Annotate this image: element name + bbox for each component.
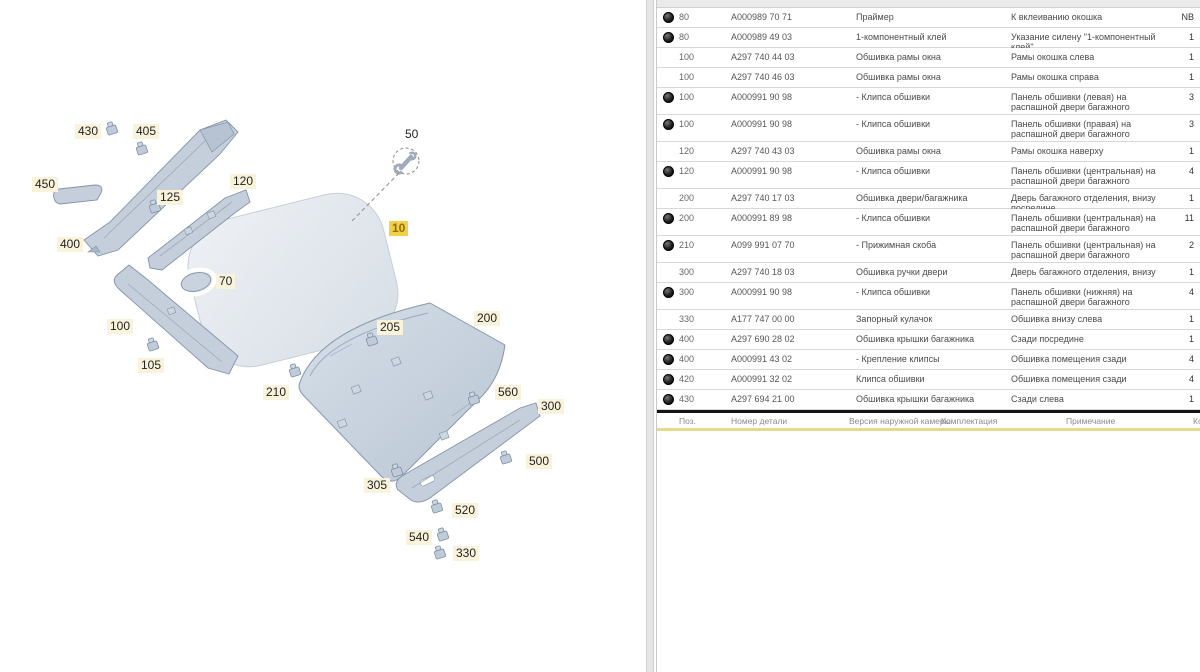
row-quantity: 11 bbox=[1149, 213, 1194, 223]
part-label-50[interactable]: 50 bbox=[402, 127, 421, 142]
table-row[interactable]: 80A000989 70 71ПраймерК вклеиванию окошк… bbox=[657, 8, 1200, 28]
part-image-icon[interactable] bbox=[663, 32, 674, 43]
row-pos: 300 bbox=[679, 267, 719, 277]
row-note: К вклеиванию окошка bbox=[1011, 12, 1161, 22]
row-pos: 210 bbox=[679, 240, 719, 250]
row-part-number: A297 690 28 02 bbox=[731, 334, 851, 344]
part-image-icon[interactable] bbox=[663, 92, 674, 103]
part-label-205[interactable]: 205 bbox=[377, 320, 403, 335]
row-part-number: A000991 43 02 bbox=[731, 354, 851, 364]
part-label-500[interactable]: 500 bbox=[526, 454, 552, 469]
part-label-105[interactable]: 105 bbox=[138, 358, 164, 373]
table-row[interactable]: 200A000991 89 98- Клипса обшивкиПанель о… bbox=[657, 209, 1200, 236]
table-row[interactable]: 330A177 747 00 00Запорный кулачокОбшивка… bbox=[657, 310, 1200, 330]
row-image-cell bbox=[663, 334, 675, 345]
row-part-number: A297 740 17 03 bbox=[731, 193, 851, 203]
row-pos: 400 bbox=[679, 334, 719, 344]
row-quantity: 2 bbox=[1149, 240, 1194, 250]
table-row[interactable]: 430A297 694 21 00Обшивка крышки багажник… bbox=[657, 390, 1200, 410]
part-image-icon[interactable] bbox=[663, 213, 674, 224]
table-row[interactable]: 100A000991 90 98- Клипса обшивкиПанель о… bbox=[657, 115, 1200, 142]
row-quantity: 1 bbox=[1149, 52, 1194, 62]
part-handle[interactable] bbox=[54, 185, 102, 204]
row-note: Обшивка внизу слева bbox=[1011, 314, 1161, 324]
part-label-450[interactable]: 450 bbox=[32, 177, 58, 192]
scrolled-row-remnant bbox=[657, 0, 1200, 8]
parts-table-pane: 80A000989 70 71ПраймерК вклеиванию окошк… bbox=[656, 0, 1200, 672]
row-pos: 100 bbox=[679, 92, 719, 102]
row-image-cell bbox=[663, 92, 675, 103]
part-label-540[interactable]: 540 bbox=[406, 530, 432, 545]
row-part-number: A099 991 07 70 bbox=[731, 240, 851, 250]
next-section-header: Поз. Номер детали Версия наружной камеры… bbox=[657, 413, 1200, 428]
row-note: Дверь багажного отделения, внизу bbox=[1011, 267, 1161, 277]
row-pos: 300 bbox=[679, 287, 719, 297]
table-row[interactable]: 100A297 740 44 03Обшивка рамы окнаРамы о… bbox=[657, 48, 1200, 68]
part-clip-105[interactable] bbox=[147, 338, 159, 352]
row-note: Рамы окошка слева bbox=[1011, 52, 1161, 62]
row-pos: 120 bbox=[679, 146, 719, 156]
part-label-330[interactable]: 330 bbox=[453, 546, 479, 561]
row-quantity: 4 bbox=[1149, 354, 1194, 364]
row-pos: 330 bbox=[679, 314, 719, 324]
part-label-210[interactable]: 210 bbox=[263, 385, 289, 400]
table-row[interactable]: 210A099 991 07 70- Прижимная скобаПанель… bbox=[657, 236, 1200, 263]
part-label-305[interactable]: 305 bbox=[364, 478, 390, 493]
table-row[interactable]: 200A297 740 17 03Обшивка двери/багажника… bbox=[657, 189, 1200, 209]
row-pos: 400 bbox=[679, 354, 719, 364]
part-label-400[interactable]: 400 bbox=[57, 237, 83, 252]
parts-diagram: 4304054504001251201001057050102052002105… bbox=[0, 0, 646, 672]
row-note: Обшивка помещения сзади bbox=[1011, 354, 1161, 364]
row-pos: 100 bbox=[679, 72, 719, 82]
part-label-100[interactable]: 100 bbox=[107, 319, 133, 334]
part-label-125[interactable]: 125 bbox=[157, 190, 183, 205]
row-part-number: A000989 70 71 bbox=[731, 12, 851, 22]
row-image-cell bbox=[663, 166, 675, 177]
row-image-cell bbox=[663, 32, 675, 43]
row-part-number: A297 740 18 03 bbox=[731, 267, 851, 277]
row-image-cell bbox=[663, 213, 675, 224]
diagram-canvas bbox=[0, 0, 646, 672]
part-image-icon[interactable] bbox=[663, 334, 674, 345]
row-image-cell bbox=[663, 240, 675, 251]
row-image-cell bbox=[663, 394, 675, 405]
row-part-number: A000991 89 98 bbox=[731, 213, 851, 223]
row-part-name: Обшивка крышки багажника bbox=[856, 394, 1006, 404]
table-row[interactable]: 120A297 740 43 03Обшивка рамы окнаРамы о… bbox=[657, 142, 1200, 162]
part-clip-500[interactable] bbox=[500, 451, 512, 465]
row-part-number: A000989 49 03 bbox=[731, 32, 851, 42]
part-clip-210[interactable] bbox=[289, 364, 301, 378]
row-quantity: 1 bbox=[1149, 394, 1194, 404]
part-label-300[interactable]: 300 bbox=[538, 399, 564, 414]
wrench-icon[interactable] bbox=[393, 148, 419, 175]
parts-table-rows: 80A000989 70 71ПраймерК вклеиванию окошк… bbox=[657, 8, 1200, 410]
row-part-name: Обшивка двери/багажника bbox=[856, 193, 1006, 203]
part-clip-430[interactable] bbox=[106, 122, 118, 136]
table-row[interactable]: 300A297 740 18 03Обшивка ручки двериДвер… bbox=[657, 263, 1200, 283]
row-part-number: A000991 32 02 bbox=[731, 374, 851, 384]
row-part-name: - Крепление клипсы bbox=[856, 354, 1006, 364]
part-image-icon[interactable] bbox=[663, 287, 674, 298]
row-part-name: - Клипса обшивки bbox=[856, 92, 1006, 102]
part-image-icon[interactable] bbox=[663, 394, 674, 405]
part-label-200[interactable]: 200 bbox=[474, 311, 500, 326]
row-part-number: A177 747 00 00 bbox=[731, 314, 851, 324]
row-quantity: 1 bbox=[1149, 193, 1194, 203]
pane-divider-scrollbar[interactable] bbox=[646, 0, 654, 672]
row-pos: 200 bbox=[679, 213, 719, 223]
col-header-pos: Поз. bbox=[679, 416, 696, 426]
col-header-equipment: Комплектация bbox=[941, 416, 997, 426]
row-part-number: A297 740 43 03 bbox=[731, 146, 851, 156]
row-quantity: 1 bbox=[1149, 32, 1194, 42]
row-pos: 430 bbox=[679, 394, 719, 404]
part-label-120[interactable]: 120 bbox=[230, 174, 256, 189]
row-quantity: 1 bbox=[1149, 146, 1194, 156]
row-part-name: Обшивка рамы окна bbox=[856, 146, 1006, 156]
row-part-name: - Клипса обшивки bbox=[856, 119, 1006, 129]
part-image-icon[interactable] bbox=[663, 166, 674, 177]
part-label-10[interactable]: 10 bbox=[389, 221, 408, 236]
table-row[interactable]: 80A000989 49 031-компонентный клейУказан… bbox=[657, 28, 1200, 48]
row-part-number: A000991 90 98 bbox=[731, 287, 851, 297]
row-part-number: A297 740 44 03 bbox=[731, 52, 851, 62]
row-quantity: 1 bbox=[1149, 72, 1194, 82]
row-pos: 80 bbox=[679, 12, 719, 22]
part-clip-540[interactable] bbox=[437, 528, 449, 542]
section-accent-underline bbox=[657, 428, 1200, 431]
row-quantity: 4 bbox=[1149, 374, 1194, 384]
row-part-name: Обшивка ручки двери bbox=[856, 267, 1006, 277]
row-part-name: Запорный кулачок bbox=[856, 314, 1006, 324]
row-pos: 100 bbox=[679, 119, 719, 129]
part-clip-520[interactable] bbox=[431, 500, 443, 514]
row-image-cell bbox=[663, 354, 675, 365]
row-pos: 420 bbox=[679, 374, 719, 384]
row-quantity: 3 bbox=[1149, 119, 1194, 129]
part-image-icon[interactable] bbox=[663, 240, 674, 251]
row-part-number: A297 740 46 03 bbox=[731, 72, 851, 82]
part-clip-405[interactable] bbox=[136, 142, 148, 156]
table-row[interactable]: 420A000991 32 02Клипса обшивкиОбшивка по… bbox=[657, 370, 1200, 390]
row-quantity: 1 bbox=[1149, 314, 1194, 324]
row-note: Обшивка помещения сзади bbox=[1011, 374, 1161, 384]
row-note: Сзади посредине bbox=[1011, 334, 1161, 344]
row-part-name: - Клипса обшивки bbox=[856, 213, 1006, 223]
row-part-name: 1-компонентный клей bbox=[856, 32, 1006, 42]
part-image-icon[interactable] bbox=[663, 119, 674, 130]
row-note: Рамы окошка наверху bbox=[1011, 146, 1161, 156]
part-image-icon[interactable] bbox=[663, 374, 674, 385]
part-image-icon[interactable] bbox=[663, 12, 674, 23]
part-image-icon[interactable] bbox=[663, 354, 674, 365]
row-part-name: - Клипса обшивки bbox=[856, 166, 1006, 176]
row-part-number: A000991 90 98 bbox=[731, 166, 851, 176]
part-label-405[interactable]: 405 bbox=[133, 124, 159, 139]
part-label-430[interactable]: 430 bbox=[75, 124, 101, 139]
row-part-name: Обшивка крышки багажника bbox=[856, 334, 1006, 344]
row-quantity: 1 bbox=[1149, 267, 1194, 277]
row-quantity: 4 bbox=[1149, 166, 1194, 176]
col-header-partnumber: Номер детали bbox=[731, 416, 787, 426]
row-part-name: Обшивка рамы окна bbox=[856, 72, 1006, 82]
row-pos: 100 bbox=[679, 52, 719, 62]
row-part-name: Праймер bbox=[856, 12, 1006, 22]
row-part-name: Клипса обшивки bbox=[856, 374, 1006, 384]
row-quantity: 4 bbox=[1149, 287, 1194, 297]
row-note: Сзади слева bbox=[1011, 394, 1161, 404]
row-pos: 120 bbox=[679, 166, 719, 176]
col-header-qty: Кол-во bbox=[1193, 416, 1200, 426]
row-image-cell bbox=[663, 287, 675, 298]
row-part-number: A000991 90 98 bbox=[731, 92, 851, 102]
col-header-note: Примечание bbox=[1066, 416, 1115, 426]
part-label-560[interactable]: 560 bbox=[495, 385, 521, 400]
table-row[interactable]: 100A297 740 46 03Обшивка рамы окнаРамы о… bbox=[657, 68, 1200, 88]
row-part-name: Обшивка рамы окна bbox=[856, 52, 1006, 62]
part-label-70[interactable]: 70 bbox=[216, 274, 235, 289]
row-pos: 200 bbox=[679, 193, 719, 203]
table-row[interactable]: 100A000991 90 98- Клипса обшивкиПанель о… bbox=[657, 88, 1200, 115]
row-part-number: A000991 90 98 bbox=[731, 119, 851, 129]
row-quantity: 1 bbox=[1149, 334, 1194, 344]
col-header-version: Версия наружной камеры bbox=[849, 416, 951, 426]
row-quantity: 3 bbox=[1149, 92, 1194, 102]
row-part-number: A297 694 21 00 bbox=[731, 394, 851, 404]
table-row[interactable]: 120A000991 90 98- Клипса обшивкиПанель о… bbox=[657, 162, 1200, 189]
table-row[interactable]: 300A000991 90 98- Клипса обшивкиПанель о… bbox=[657, 283, 1200, 310]
part-label-520[interactable]: 520 bbox=[452, 503, 478, 518]
table-row[interactable]: 400A000991 43 02- Крепление клипсыОбшивк… bbox=[657, 350, 1200, 370]
row-image-cell bbox=[663, 12, 675, 23]
row-part-name: - Прижимная скоба bbox=[856, 240, 1006, 250]
row-image-cell bbox=[663, 119, 675, 130]
row-note: Рамы окошка справа bbox=[1011, 72, 1161, 82]
row-quantity: NB bbox=[1149, 12, 1194, 22]
row-pos: 80 bbox=[679, 32, 719, 42]
row-image-cell bbox=[663, 374, 675, 385]
part-lock-cam-330[interactable] bbox=[434, 546, 446, 560]
table-row[interactable]: 400A297 690 28 02Обшивка крышки багажник… bbox=[657, 330, 1200, 350]
row-part-name: - Клипса обшивки bbox=[856, 287, 1006, 297]
